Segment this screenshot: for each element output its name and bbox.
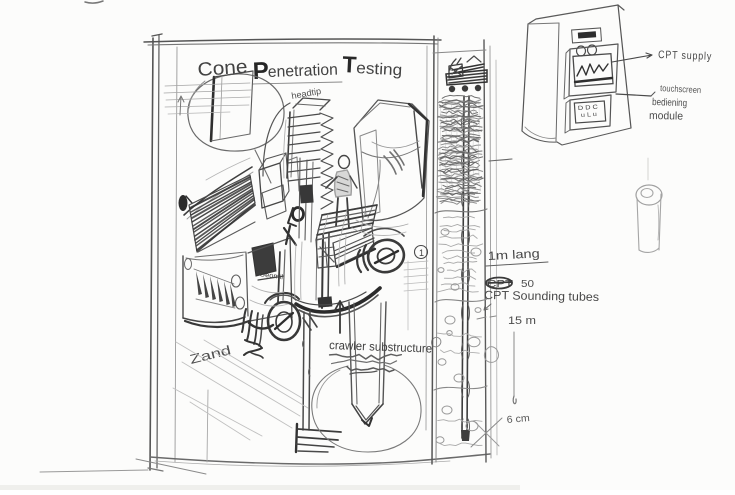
svg-text:module: module bbox=[649, 110, 683, 123]
svg-text:bediening: bediening bbox=[652, 97, 687, 109]
svg-text:u L u: u L u bbox=[581, 112, 597, 119]
svg-text:6 cm: 6 cm bbox=[506, 413, 530, 426]
svg-text:Cone: Cone bbox=[197, 57, 248, 81]
svg-text:enetration: enetration bbox=[268, 62, 339, 81]
svg-text:esting: esting bbox=[356, 60, 403, 79]
svg-text:15 m: 15 m bbox=[508, 315, 536, 327]
svg-text:CPT supply: CPT supply bbox=[658, 49, 712, 63]
svg-text:touchscreen: touchscreen bbox=[660, 83, 701, 95]
svg-text:1: 1 bbox=[419, 248, 424, 258]
svg-text:1m lang: 1m lang bbox=[487, 246, 540, 263]
svg-text:T: T bbox=[342, 51, 357, 78]
svg-text:CPT Sounding tubes: CPT Sounding tubes bbox=[484, 288, 599, 304]
